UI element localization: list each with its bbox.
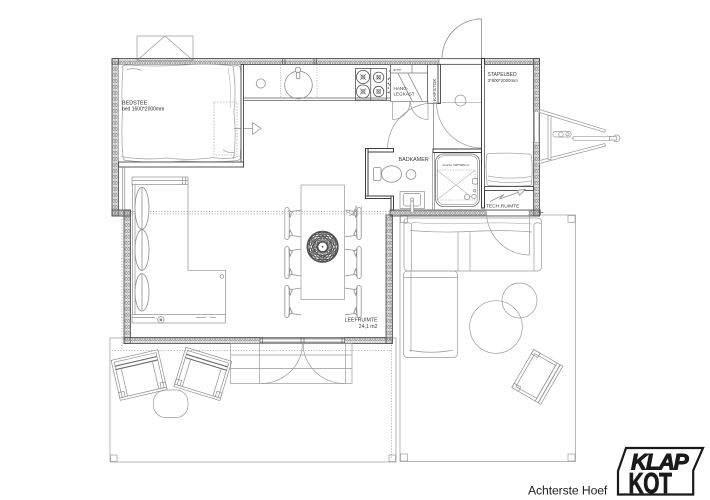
svg-text:LEEFRUIMTE: LEEFRUIMTE — [345, 318, 378, 324]
svg-text:HANG-: HANG- — [394, 86, 409, 91]
svg-text:geiser: geiser — [394, 68, 402, 72]
svg-text:LEGKAST: LEGKAST — [394, 92, 415, 97]
svg-text:Achterste Hoef: Achterste Hoef — [528, 484, 608, 498]
svg-text:BADKAMER: BADKAMER — [399, 157, 429, 163]
svg-text:bed 1600*2000mm: bed 1600*2000mm — [122, 107, 164, 113]
svg-text:3*800*2000mm: 3*800*2000mm — [488, 78, 519, 83]
svg-text:24,1 m2: 24,1 m2 — [359, 324, 378, 330]
svg-text:douche 900*900mm: douche 900*900mm — [443, 163, 470, 167]
svg-text:KAPSTOK: KAPSTOK — [432, 78, 438, 101]
svg-text:TECH.RUIMTE: TECH.RUIMTE — [486, 204, 520, 210]
svg-text:KOT: KOT — [629, 468, 673, 500]
